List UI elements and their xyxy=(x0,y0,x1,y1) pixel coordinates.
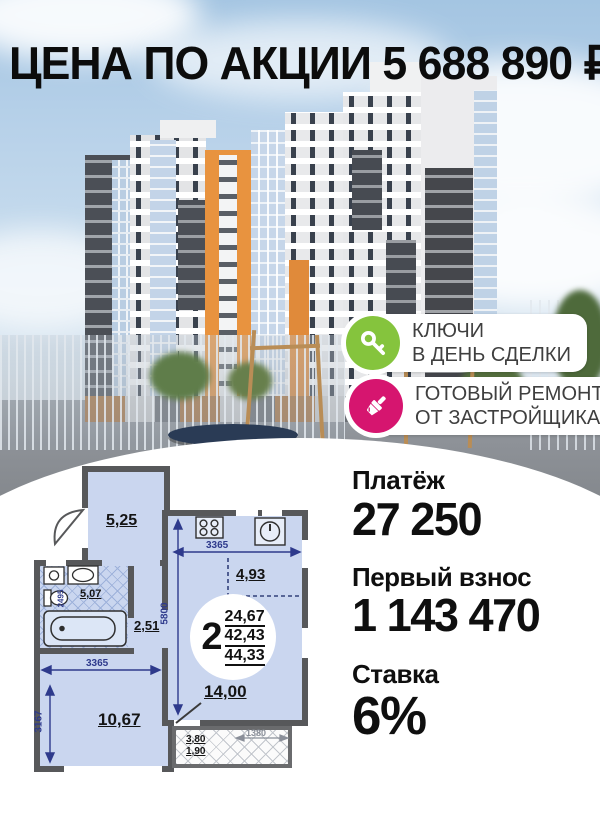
key-icon xyxy=(346,316,400,370)
stove-icon xyxy=(196,517,223,538)
dim-bedroom-width: 3365 xyxy=(86,658,108,669)
dim-arrow-kitchen-width xyxy=(174,548,300,556)
dim-balcony-width: 1380 xyxy=(246,728,266,738)
rate-label: Ставка xyxy=(352,660,598,689)
room-label-niche: 4,93 xyxy=(236,566,265,583)
room-label-corridor: 2,51 xyxy=(134,618,159,633)
bathtub-icon xyxy=(44,611,126,646)
sink-icon xyxy=(255,518,285,545)
floor-plan: 5,25 5,07 2,51 10,67 14,00 4,93 3,80 1,9… xyxy=(6,460,312,808)
badge-renovation: ГОТОВЫЙ РЕМОНТ ОТ ЗАСТРОЙЩИКА xyxy=(349,377,600,435)
tree xyxy=(150,352,210,400)
building-roof-parapet xyxy=(160,120,216,138)
promo-price-title: ЦЕНА ПО АКЦИИ 5 688 890 ₽ xyxy=(9,36,591,90)
room-label-bathroom: 5,07 xyxy=(80,588,101,600)
badge-line: ОТ ЗАСТРОЙЩИКА xyxy=(415,406,600,430)
building-dark-panel xyxy=(178,200,206,310)
downpayment-label: Первый взнос xyxy=(352,563,598,592)
payment-label: Платёж xyxy=(352,466,598,495)
rooms-count: 2 xyxy=(201,616,222,659)
balcony-area-half: 1,90 xyxy=(186,746,205,757)
badge-line: КЛЮЧИ xyxy=(412,319,571,343)
badge-renovation-pill: ГОТОВЫЙ РЕМОНТ ОТ ЗАСТРОЙЩИКА xyxy=(371,377,600,435)
brush-icon xyxy=(349,379,403,433)
dim-arrow-bedroom-height xyxy=(46,686,54,762)
real-estate-poster: ЦЕНА ПО АКЦИИ 5 688 890 ₽ КЛЮЧИ В ДЕНЬ С… xyxy=(0,0,600,824)
entrance-door-icon xyxy=(55,510,83,544)
balcony-area-full: 3,80 xyxy=(186,734,205,745)
dim-bath-height: 2495 xyxy=(56,590,65,608)
payment-value: 27 250 xyxy=(352,495,593,543)
rate-value: 6% xyxy=(352,688,593,745)
badge-keys: КЛЮЧИ В ДЕНЬ СДЕЛКИ xyxy=(346,314,587,372)
living-area: 24,67 xyxy=(225,608,265,628)
apartment-summary-circle: 2 24,67 42,43 44,33 xyxy=(190,594,276,680)
total-area: 44,33 xyxy=(225,647,265,667)
room-label-kitchen: 14,00 xyxy=(204,682,247,702)
badge-line: В ДЕНЬ СДЕЛКИ xyxy=(412,343,571,367)
badge-keys-pill: КЛЮЧИ В ДЕНЬ СДЕЛКИ xyxy=(368,314,587,372)
downpayment-value: 1 143 470 xyxy=(352,591,593,639)
washbasin-icon xyxy=(68,566,98,584)
dim-kitchen-height: 5800 xyxy=(160,602,171,624)
washing-machine-icon xyxy=(44,567,64,584)
room-label-hall: 5,25 xyxy=(106,512,137,530)
badge-line: ГОТОВЫЙ РЕМОНТ xyxy=(415,382,600,406)
dim-kitchen-width: 3365 xyxy=(206,540,228,551)
room-label-bedroom: 10,67 xyxy=(98,710,141,730)
dim-bedroom-height: 3167 xyxy=(34,710,45,732)
payments-panel: Платёж 27 250 Первый взнос 1 143 470 Ста… xyxy=(352,466,598,765)
building-dark-panel xyxy=(352,150,382,230)
apartment-area: 42,43 xyxy=(225,627,265,647)
